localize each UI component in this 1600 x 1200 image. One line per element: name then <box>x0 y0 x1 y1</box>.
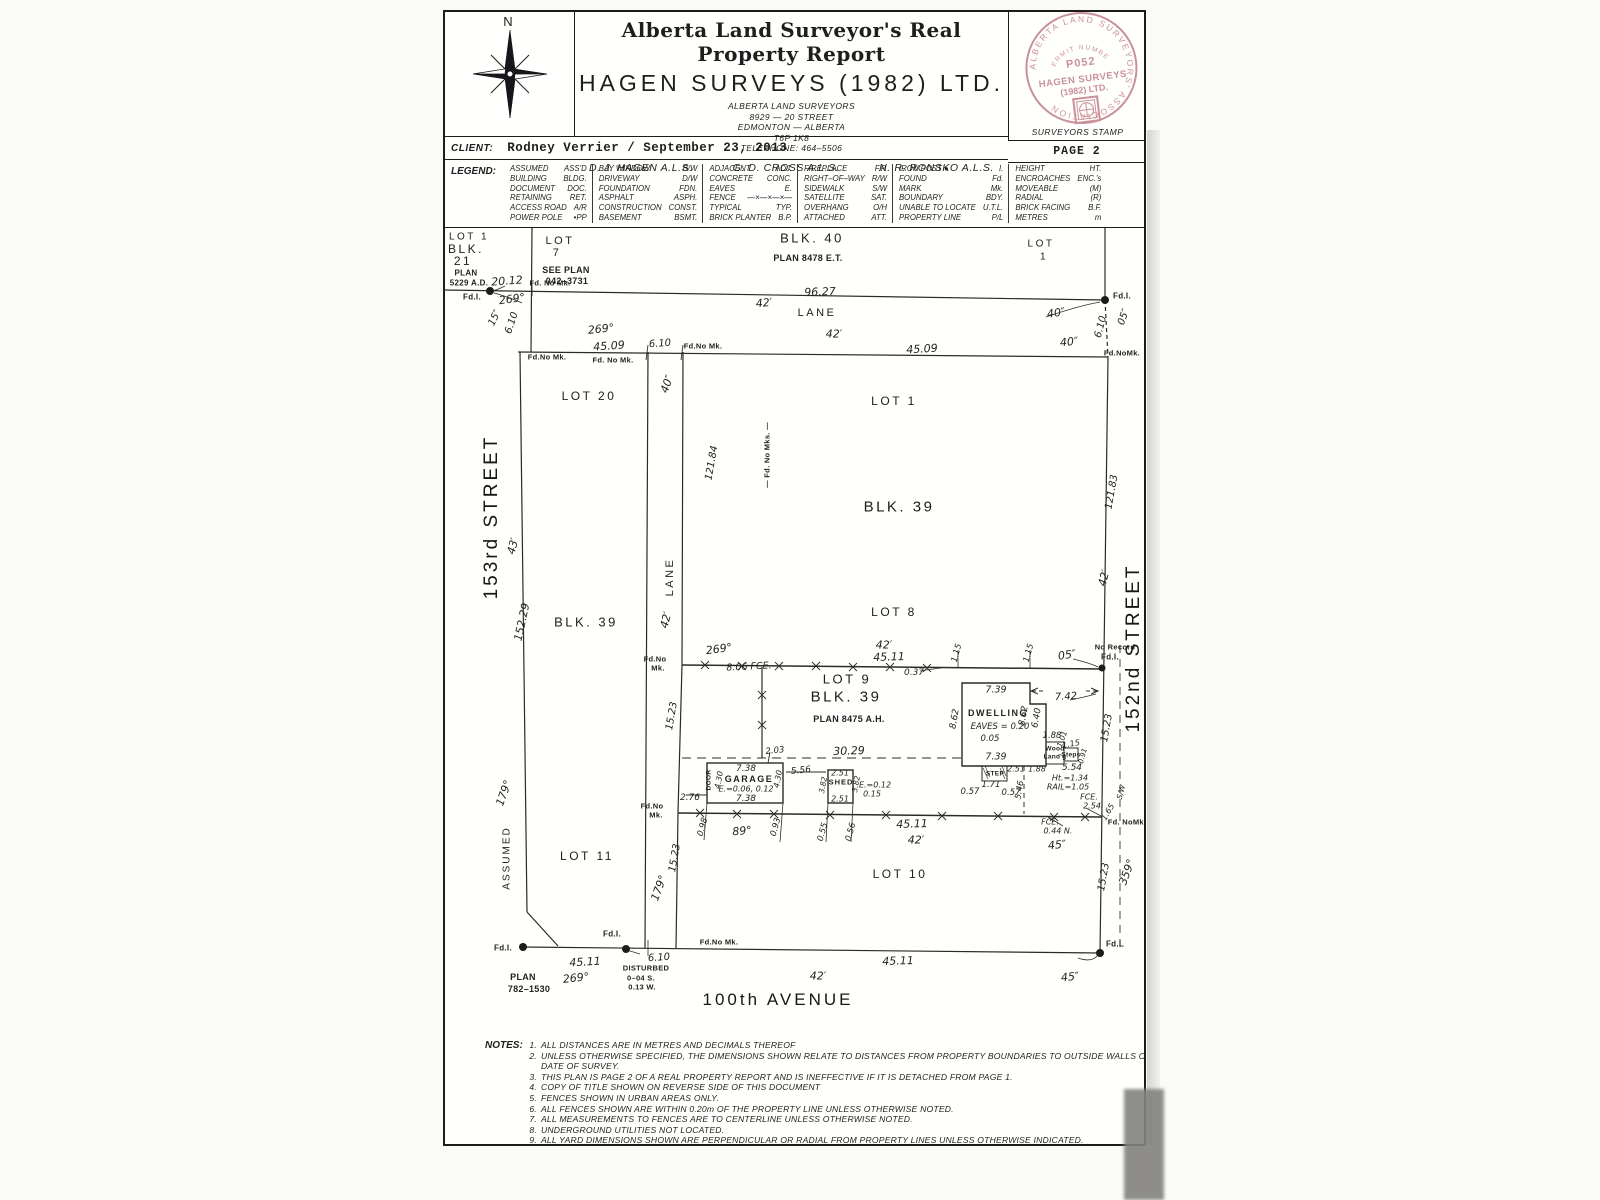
scanned-survey-document: LOT 1BLK.21PLAN5229 A.D.LOT7SEE PLAN042–… <box>0 0 1600 1200</box>
measure-lines <box>682 645 1120 948</box>
survey-plan-drawing <box>0 0 1600 1200</box>
boundary-lines <box>444 228 1108 953</box>
dimension-ticks <box>532 283 826 795</box>
step-hatching <box>983 766 1006 779</box>
scan-edge-artifact <box>1147 130 1160 1145</box>
iron-post-markers <box>486 287 1109 957</box>
structure-outlines <box>707 683 1078 803</box>
leader-curves <box>492 286 1100 960</box>
scan-corner-artifact <box>1124 1089 1164 1200</box>
